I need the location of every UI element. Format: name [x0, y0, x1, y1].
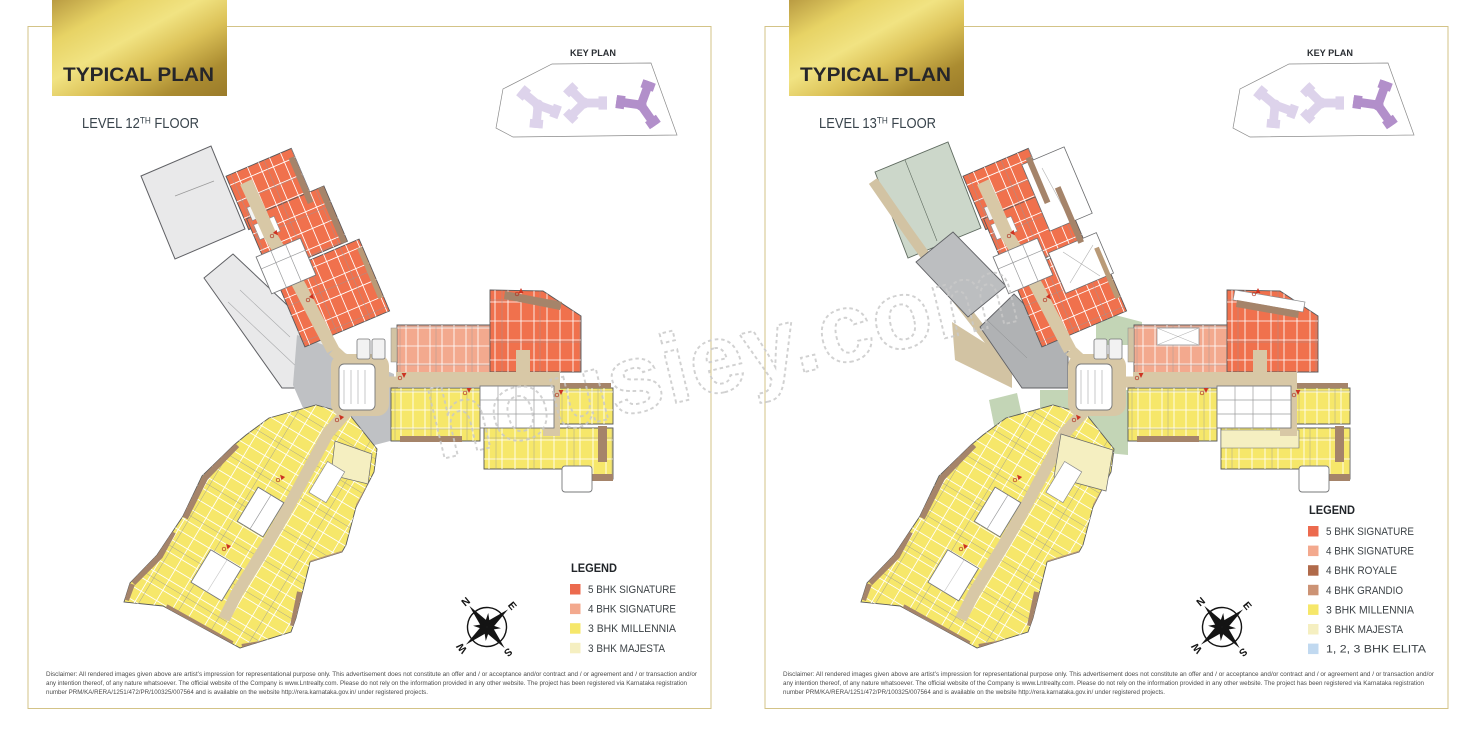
svg-text:5 BHK SIGNATURE: 5 BHK SIGNATURE [1326, 526, 1414, 538]
svg-text:any intention thereof, of any: any intention thereof, of any nature wha… [783, 680, 1424, 687]
svg-text:KEY PLAN: KEY PLAN [1307, 48, 1353, 58]
svg-text:4 BHK GRANDIO: 4 BHK GRANDIO [1326, 585, 1403, 597]
svg-text:3 BHK MAJESTA: 3 BHK MAJESTA [1326, 624, 1404, 636]
svg-text:4 BHK ROYALE: 4 BHK ROYALE [1326, 565, 1397, 577]
svg-text:LEGEND: LEGEND [571, 563, 617, 575]
svg-text:TYPICAL PLAN: TYPICAL PLAN [63, 65, 214, 86]
svg-text:5 BHK SIGNATURE: 5 BHK SIGNATURE [588, 584, 676, 596]
svg-text:3 BHK MILLENNIA: 3 BHK MILLENNIA [588, 623, 677, 635]
svg-text:number PRM/KA/RERA/1251/472/PR: number PRM/KA/RERA/1251/472/PR/100325/00… [46, 689, 428, 696]
svg-text:4 BHK SIGNATURE: 4 BHK SIGNATURE [588, 604, 676, 616]
svg-text:KEY PLAN: KEY PLAN [570, 48, 616, 58]
svg-text:number PRM/KA/RERA/1251/472/PR: number PRM/KA/RERA/1251/472/PR/100325/00… [783, 689, 1165, 696]
svg-text:Disclaimer: All rendered image: Disclaimer: All rendered images given ab… [46, 671, 698, 678]
svg-text:any intention thereof, of any: any intention thereof, of any nature wha… [46, 680, 687, 687]
svg-text:3 BHK MILLENNIA: 3 BHK MILLENNIA [1326, 604, 1415, 616]
svg-text:LEGEND: LEGEND [1309, 505, 1355, 517]
svg-text:TYPICAL PLAN: TYPICAL PLAN [800, 65, 951, 86]
svg-text:Disclaimer: All rendered image: Disclaimer: All rendered images given ab… [783, 671, 1435, 678]
svg-text:3 BHK MAJESTA: 3 BHK MAJESTA [588, 643, 666, 655]
svg-text:1, 2, 3 BHK ELITA: 1, 2, 3 BHK ELITA [1326, 644, 1427, 656]
svg-text:4 BHK SIGNATURE: 4 BHK SIGNATURE [1326, 546, 1414, 558]
